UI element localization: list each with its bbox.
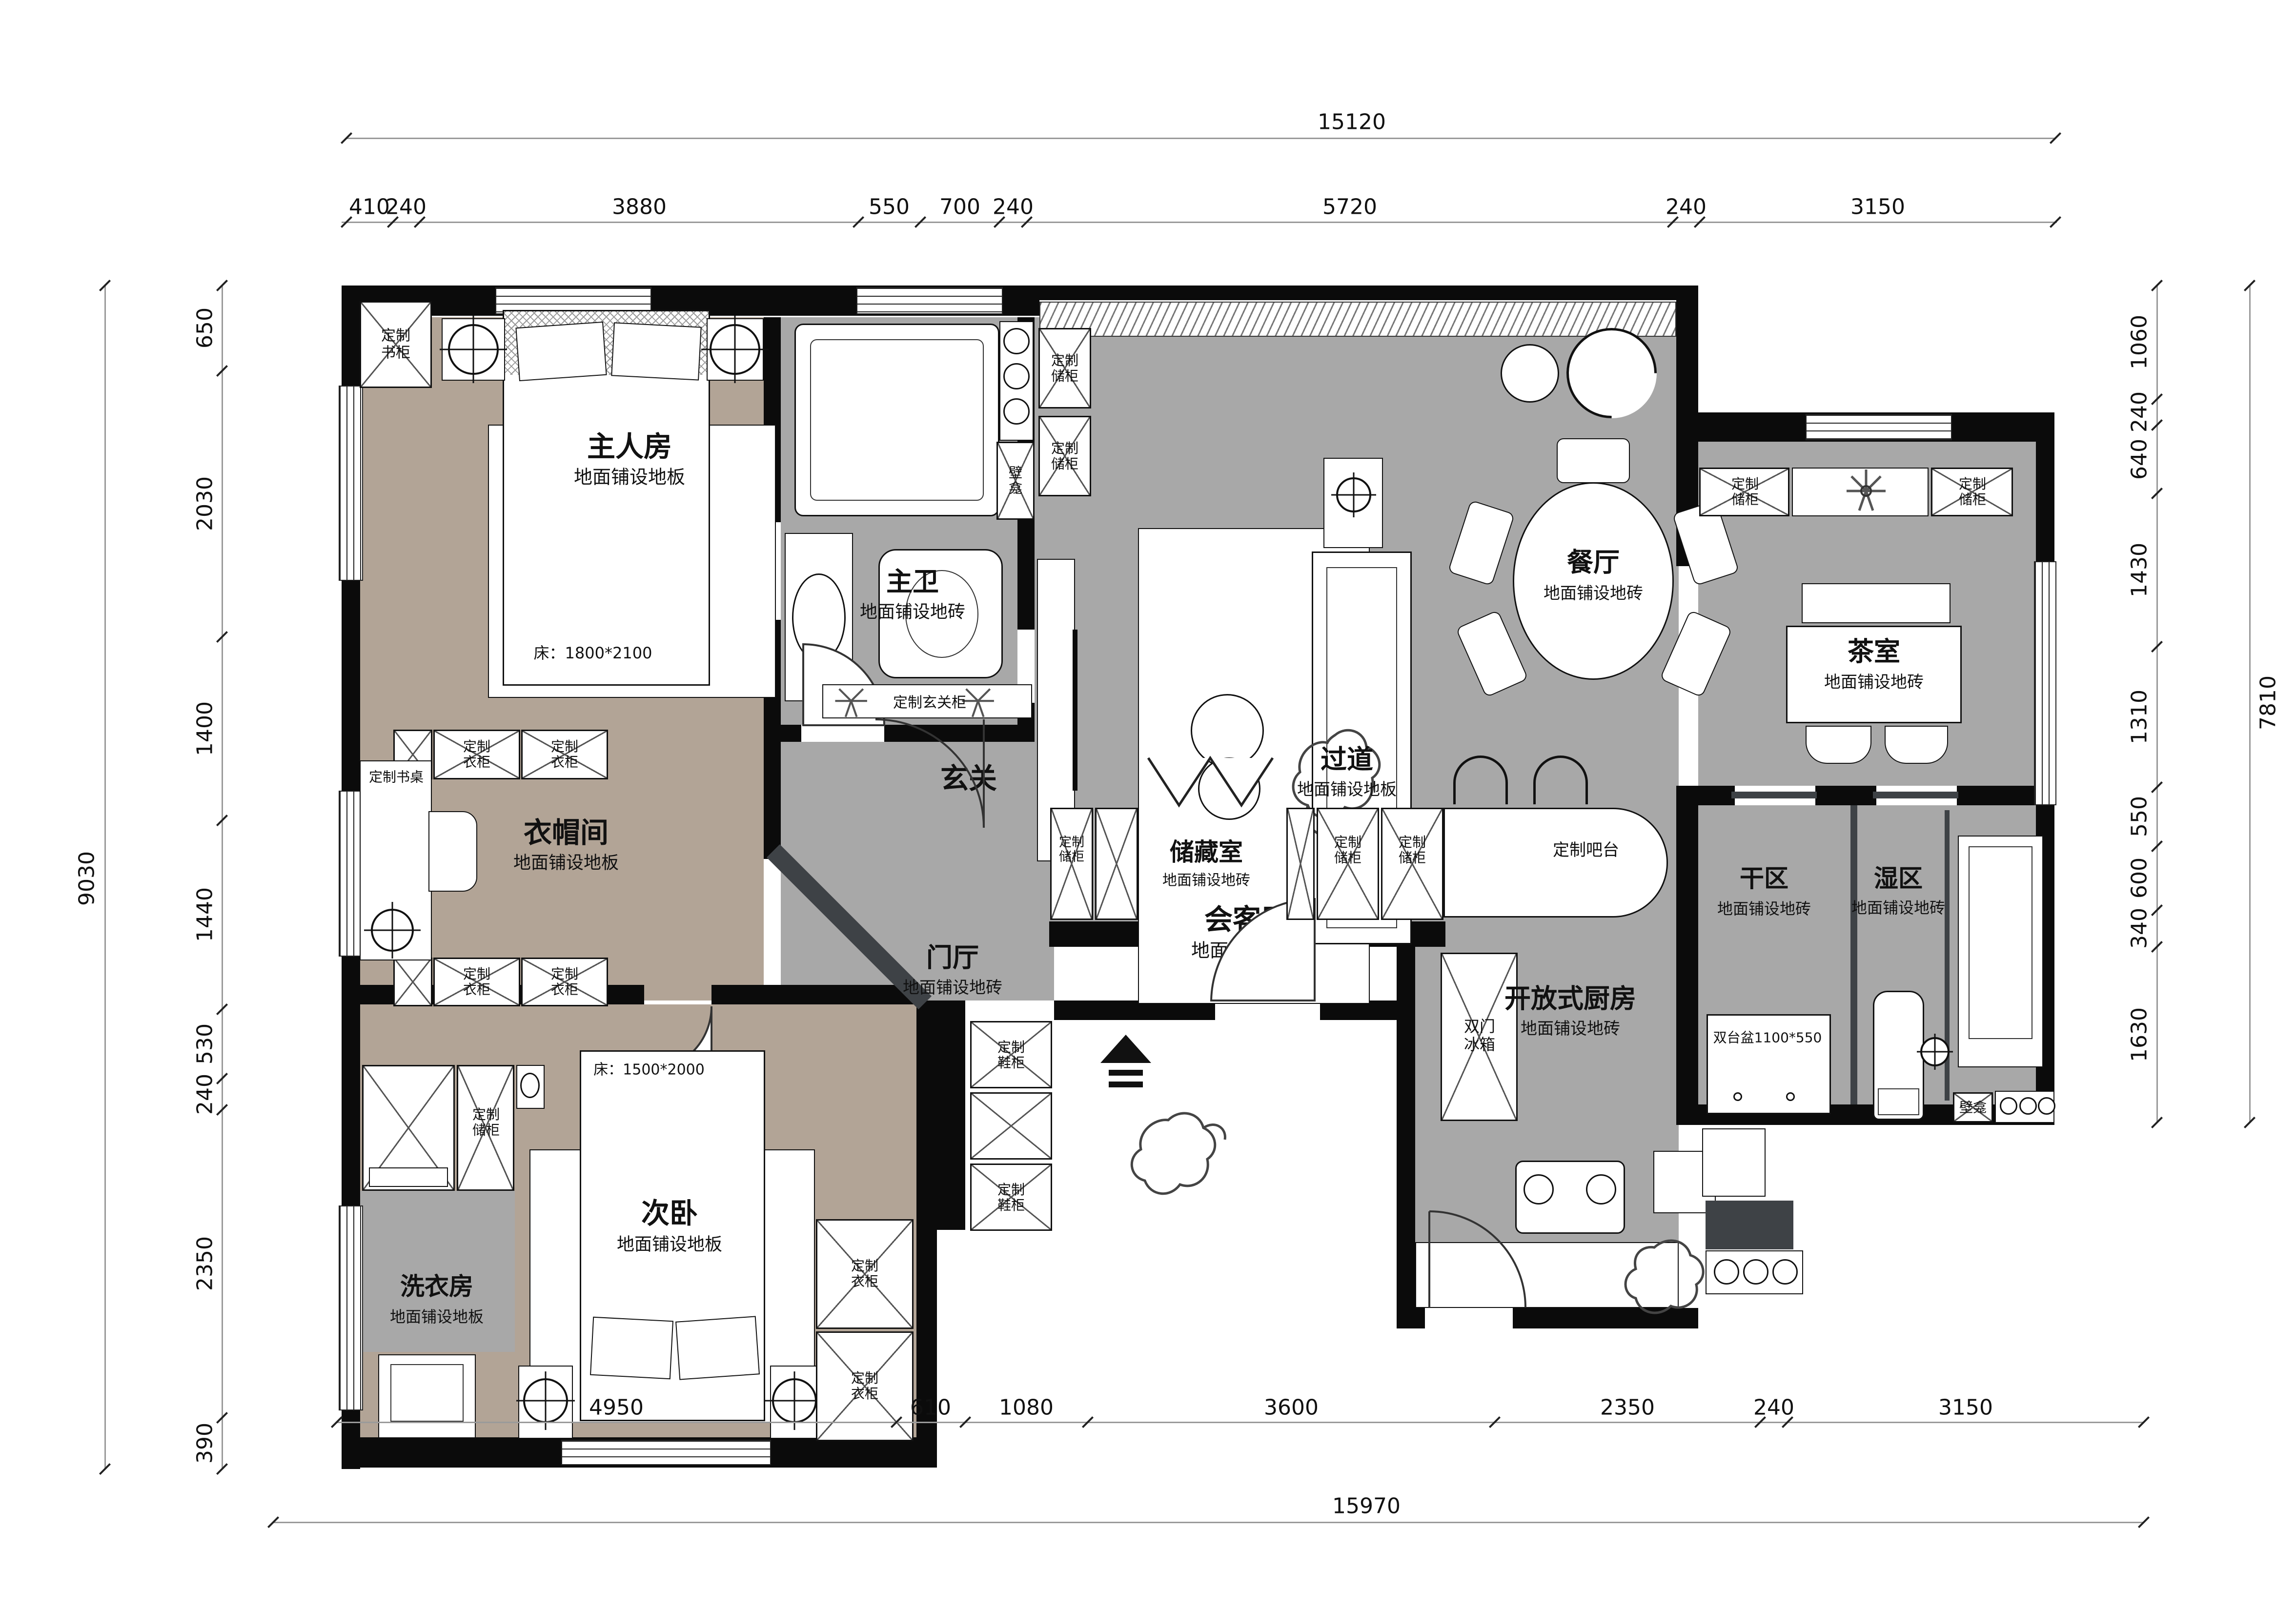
hallway-floor-label: 地面铺设地板 <box>1297 779 1397 800</box>
dim-total-top: 15120 <box>1318 109 1386 136</box>
dim-seg: 240 <box>192 1074 219 1115</box>
counter-dark-box <box>1706 1201 1793 1249</box>
dim-total-right: 7810 <box>2255 675 2282 730</box>
dim-seg: 1440 <box>192 887 219 942</box>
dim-seg: 610 <box>910 1394 951 1421</box>
storage-room-floor-label: 地面铺设地砖 <box>1162 871 1250 890</box>
dim-seg: 240 <box>993 194 1034 221</box>
sliding-door-leaf <box>1731 792 1817 798</box>
tea-room-label: 茶室 <box>1848 635 1900 668</box>
ceiling-light-icon <box>772 1378 817 1423</box>
faucet-dot <box>1786 1092 1795 1101</box>
hob-ring <box>2000 1097 2017 1115</box>
tea-stool <box>1885 726 1948 764</box>
storage-cabinet-label: 定制储柜 <box>1057 836 1086 865</box>
wardrobe-label: 定制衣柜 <box>549 966 581 998</box>
shoe-cabinet-label: 定制鞋柜 <box>995 1040 1027 1071</box>
storage-cabinet-label: 定制储柜 <box>1397 835 1428 866</box>
dim-seg: 550 <box>869 194 910 221</box>
wardrobe-label: 定制衣柜 <box>461 966 493 998</box>
kitchen-floor-label: 地面铺设地砖 <box>1521 1019 1620 1040</box>
floor-drain-icon <box>1920 1037 1950 1066</box>
person-figure <box>1118 1101 1235 1213</box>
laundry-label: 洗衣房 <box>400 1271 473 1302</box>
second-bed-size: 床：1500*2000 <box>593 1061 705 1079</box>
master-bedroom-floor-label: 地面铺设地板 <box>574 466 685 489</box>
door-gap <box>801 725 884 742</box>
dim-line-bottom-seg <box>337 1422 2144 1423</box>
bar-stool <box>1533 755 1588 804</box>
laundry-dot <box>520 1073 540 1098</box>
dim-line-right-seg <box>2156 286 2158 1123</box>
window <box>1806 414 1952 440</box>
towel-roll <box>1003 328 1030 354</box>
window <box>339 1205 363 1410</box>
tv-screen <box>1073 630 1077 791</box>
cloakroom-label: 衣帽间 <box>524 815 609 851</box>
dim-seg: 1400 <box>192 701 219 756</box>
dim-seg: 1310 <box>2126 690 2153 744</box>
window <box>2034 561 2056 805</box>
wall-cloak-right <box>764 708 781 859</box>
bar-label: 定制吧台 <box>1553 840 1619 861</box>
dim-seg: 240 <box>386 194 427 221</box>
dim-seg: 4950 <box>589 1394 644 1421</box>
entry-cabinet-label: 定制玄关柜 <box>893 694 966 712</box>
storage-cabinet-label: 定制储柜 <box>1728 476 1762 508</box>
hob-ring <box>2019 1097 2037 1115</box>
hob-ring <box>1743 1259 1768 1285</box>
wardrobe-label: 定制衣柜 <box>849 1370 881 1402</box>
window <box>856 287 1003 314</box>
washer-panel <box>369 1167 448 1187</box>
dining-table <box>1513 482 1674 680</box>
table-lamp-icon <box>1336 477 1371 512</box>
dim-seg: 410 <box>349 194 390 221</box>
dim-seg: 240 <box>1753 1394 1794 1421</box>
dim-seg: 3150 <box>1938 1394 1993 1421</box>
storage-room-label: 储藏室 <box>1170 837 1243 868</box>
dim-seg: 2350 <box>192 1236 219 1291</box>
entry-arrow-icon <box>1100 1035 1151 1063</box>
dining-chair <box>1557 438 1630 483</box>
plant-icon <box>1840 465 1893 518</box>
dim-seg: 530 <box>192 1023 219 1064</box>
towel-roll <box>1003 363 1030 389</box>
dim-seg: 550 <box>2126 796 2153 837</box>
wet-zone-floor-label: 地面铺设地砖 <box>1851 898 1945 918</box>
fridge-label: 双门冰箱 <box>1462 1018 1497 1054</box>
dim-line-bottom-total <box>273 1522 2144 1523</box>
hob-ring <box>1714 1259 1739 1285</box>
dim-seg: 2350 <box>1600 1394 1655 1421</box>
dim-seg: 5720 <box>1322 194 1377 221</box>
pillow <box>515 322 607 381</box>
entry-arrow-bar <box>1109 1082 1143 1087</box>
lounge-chair <box>1501 344 1559 403</box>
dim-seg: 700 <box>939 194 980 221</box>
hob-ring <box>1772 1259 1798 1285</box>
door-gap <box>1425 1308 1513 1328</box>
dim-seg: 340 <box>2126 908 2153 949</box>
dim-seg: 600 <box>2126 858 2153 898</box>
dry-zone-label: 干区 <box>1740 863 1788 894</box>
wardrobe-label: 定制衣柜 <box>549 739 581 770</box>
dim-line-top-total <box>346 138 2055 139</box>
tea-room-floor-label: 地面铺设地砖 <box>1824 672 1924 693</box>
shower-tray-inner <box>1969 846 2032 1039</box>
plant-icon <box>830 679 874 723</box>
folding-door <box>1146 755 1275 809</box>
pillow <box>675 1316 760 1380</box>
laundry-floor-label: 地面铺设地板 <box>390 1307 484 1327</box>
wall-cloak-bed2-b <box>711 985 917 1004</box>
master-bath-floor-label: 地面铺设地砖 <box>860 601 965 623</box>
ceiling-light-icon <box>448 324 499 375</box>
pillow <box>611 322 702 380</box>
dim-line-top-seg <box>342 222 2057 223</box>
dim-seg: 1060 <box>2126 315 2153 369</box>
window <box>339 386 363 581</box>
dim-seg: 3880 <box>612 194 667 221</box>
burner <box>1586 1174 1616 1205</box>
dim-line-left-seg <box>222 286 223 1469</box>
dim-line-left-total <box>104 286 106 1469</box>
wet-zone-label: 湿区 <box>1874 863 1923 894</box>
toilet-tank <box>1878 1088 1919 1115</box>
dim-seg: 240 <box>1666 194 1707 221</box>
sliding-door-leaf <box>1873 792 1958 798</box>
niche-label: 壁龛 <box>1959 1099 1987 1116</box>
wall-top-living <box>1035 286 1684 300</box>
pillow <box>590 1317 673 1379</box>
wall-shoe-back <box>937 1000 965 1230</box>
dim-seg: 650 <box>192 307 219 348</box>
storage-cabinet-label: 定制储柜 <box>1049 441 1080 472</box>
dim-seg: 390 <box>192 1423 219 1464</box>
dim-seg: 2030 <box>192 476 219 531</box>
storage-cabinet-label: 定制储柜 <box>470 1107 502 1138</box>
dining-label: 餐厅 <box>1567 546 1620 579</box>
dim-seg: 1080 <box>999 1394 1054 1421</box>
dim-seg: 1630 <box>2126 1007 2153 1062</box>
ceiling-light-icon <box>523 1378 568 1423</box>
dim-total-bottom: 15970 <box>1332 1493 1401 1520</box>
wardrobe-label: 定制衣柜 <box>849 1258 881 1289</box>
bookcase-label: 定制书柜 <box>379 328 413 362</box>
ceiling-light-icon <box>371 909 414 952</box>
desk-label: 定制书桌 <box>369 769 424 786</box>
dim-total-left: 9030 <box>74 851 101 906</box>
dim-seg: 3600 <box>1264 1394 1319 1421</box>
hallway-label: 过道 <box>1321 743 1373 776</box>
shoe-cabinet-label: 定制鞋柜 <box>995 1182 1027 1213</box>
storage-cabinet-label: 定制储柜 <box>1332 835 1363 866</box>
dry-zone-floor-label: 地面铺设地砖 <box>1717 899 1811 919</box>
ceiling-light-icon <box>710 324 760 375</box>
tall-cabinet <box>1702 1128 1766 1197</box>
master-bed-size: 床：1800*2100 <box>534 643 652 663</box>
floor-plan: 定制书柜 主人房 地面铺设地板 床：1800*2100 壁龛 主卫 地面铺设地砖… <box>0 0 2296 1613</box>
curtain-window-band <box>1039 302 1676 337</box>
second-bedroom-floor-label: 地面铺设地板 <box>617 1234 722 1256</box>
master-bath-label: 主卫 <box>886 565 939 598</box>
wardrobe <box>393 958 432 1006</box>
dim-seg: 3150 <box>1850 194 1905 221</box>
wardrobe-label: 定制衣柜 <box>461 739 493 770</box>
dim-seg: 1430 <box>2126 543 2153 597</box>
storage-cabinet <box>1286 808 1315 920</box>
divider-dry-wet <box>1850 805 1857 1104</box>
faucet-dot <box>1733 1092 1742 1101</box>
bar-stool <box>1453 755 1508 804</box>
double-basin-label: 双台盆1100*550 <box>1713 1029 1822 1046</box>
entry-arrow-bar <box>1109 1070 1143 1076</box>
master-bedroom-label: 主人房 <box>587 429 672 465</box>
storage-cabinet-label: 定制储柜 <box>1049 353 1080 384</box>
foyer-label: 门厅 <box>926 941 979 974</box>
dim-seg: 640 <box>2126 439 2153 480</box>
foyer-floor-label: 地面铺设地砖 <box>903 978 1002 999</box>
storage-cabinet-label: 定制储柜 <box>1956 476 1989 508</box>
kitchen-label: 开放式厨房 <box>1504 982 1636 1015</box>
dining-floor-label: 地面铺设地砖 <box>1544 583 1643 604</box>
wall-dry-left <box>1676 805 1698 1125</box>
door-arc <box>1427 1209 1527 1309</box>
dim-line-right-total <box>2249 286 2251 1123</box>
window <box>561 1440 771 1465</box>
storage-cabinet <box>1095 808 1138 920</box>
tea-bench <box>1802 583 1951 623</box>
desk-chair <box>428 811 477 892</box>
second-bedroom-label: 次卧 <box>641 1196 698 1231</box>
bathtub-inner <box>810 339 984 501</box>
towel-roll <box>1003 398 1030 425</box>
niche-label: 壁龛 <box>1007 465 1024 496</box>
bar-counter <box>1443 808 1668 918</box>
shoe-cabinet <box>970 1092 1052 1160</box>
hob-ring <box>2038 1097 2055 1115</box>
cloakroom-floor-label: 地面铺设地板 <box>513 852 619 874</box>
burner <box>1524 1174 1554 1205</box>
laundry-sink-basin <box>390 1364 464 1422</box>
door-arc <box>874 717 986 830</box>
tea-stool <box>1806 726 1871 764</box>
dim-seg: 240 <box>2126 391 2153 432</box>
